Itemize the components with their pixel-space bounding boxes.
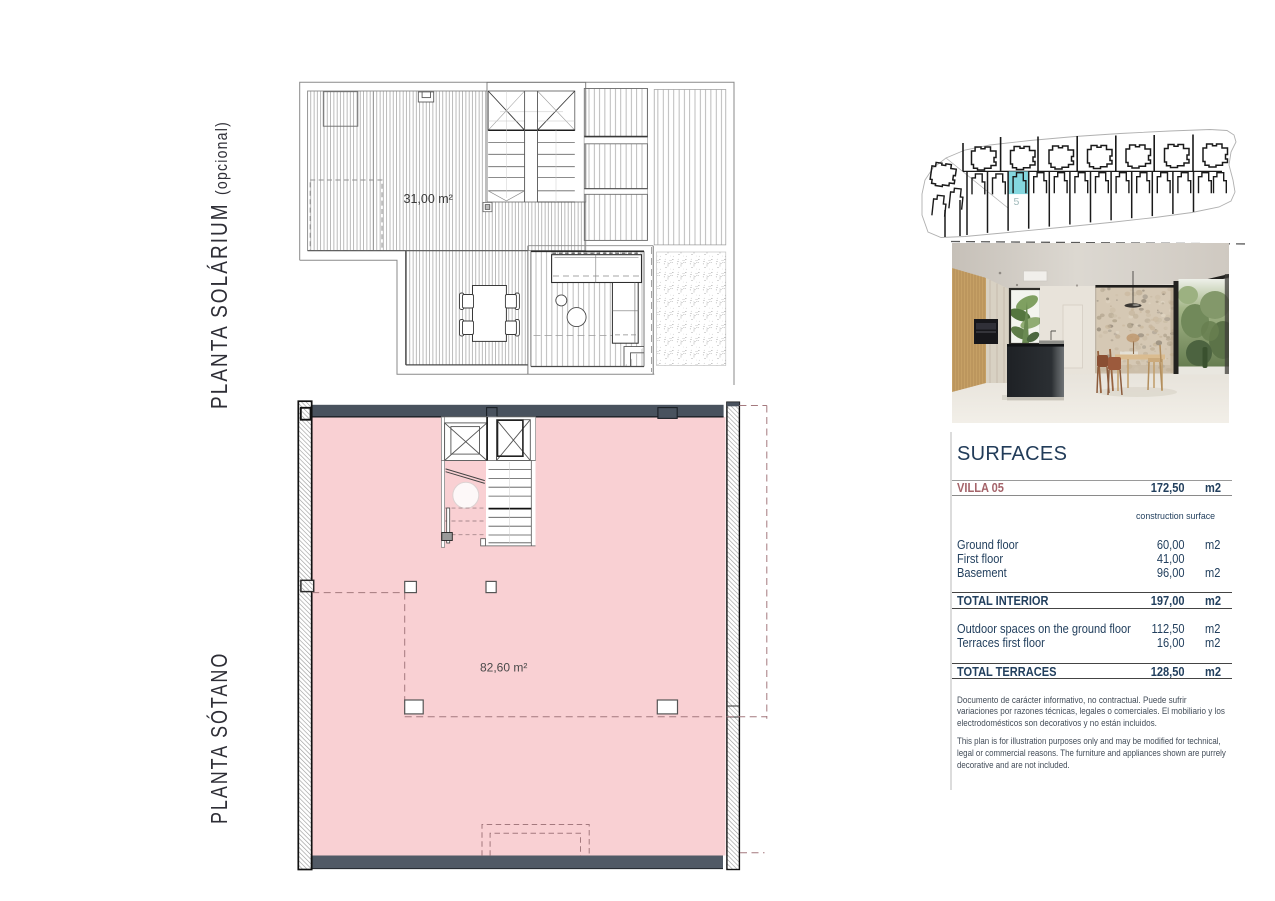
svg-text:5: 5 (1014, 196, 1020, 208)
svg-text:82,60 m²: 82,60 m² (480, 661, 527, 675)
svg-text:31,00 m²: 31,00 m² (404, 192, 453, 206)
